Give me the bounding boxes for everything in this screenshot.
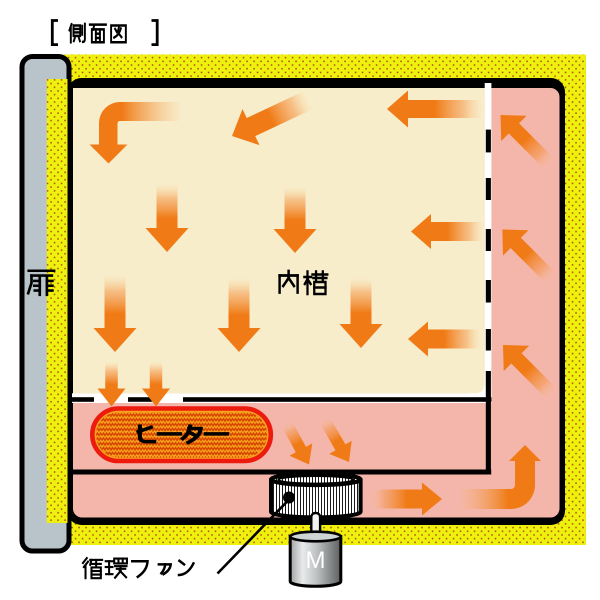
svg-text:M: M: [306, 547, 326, 574]
